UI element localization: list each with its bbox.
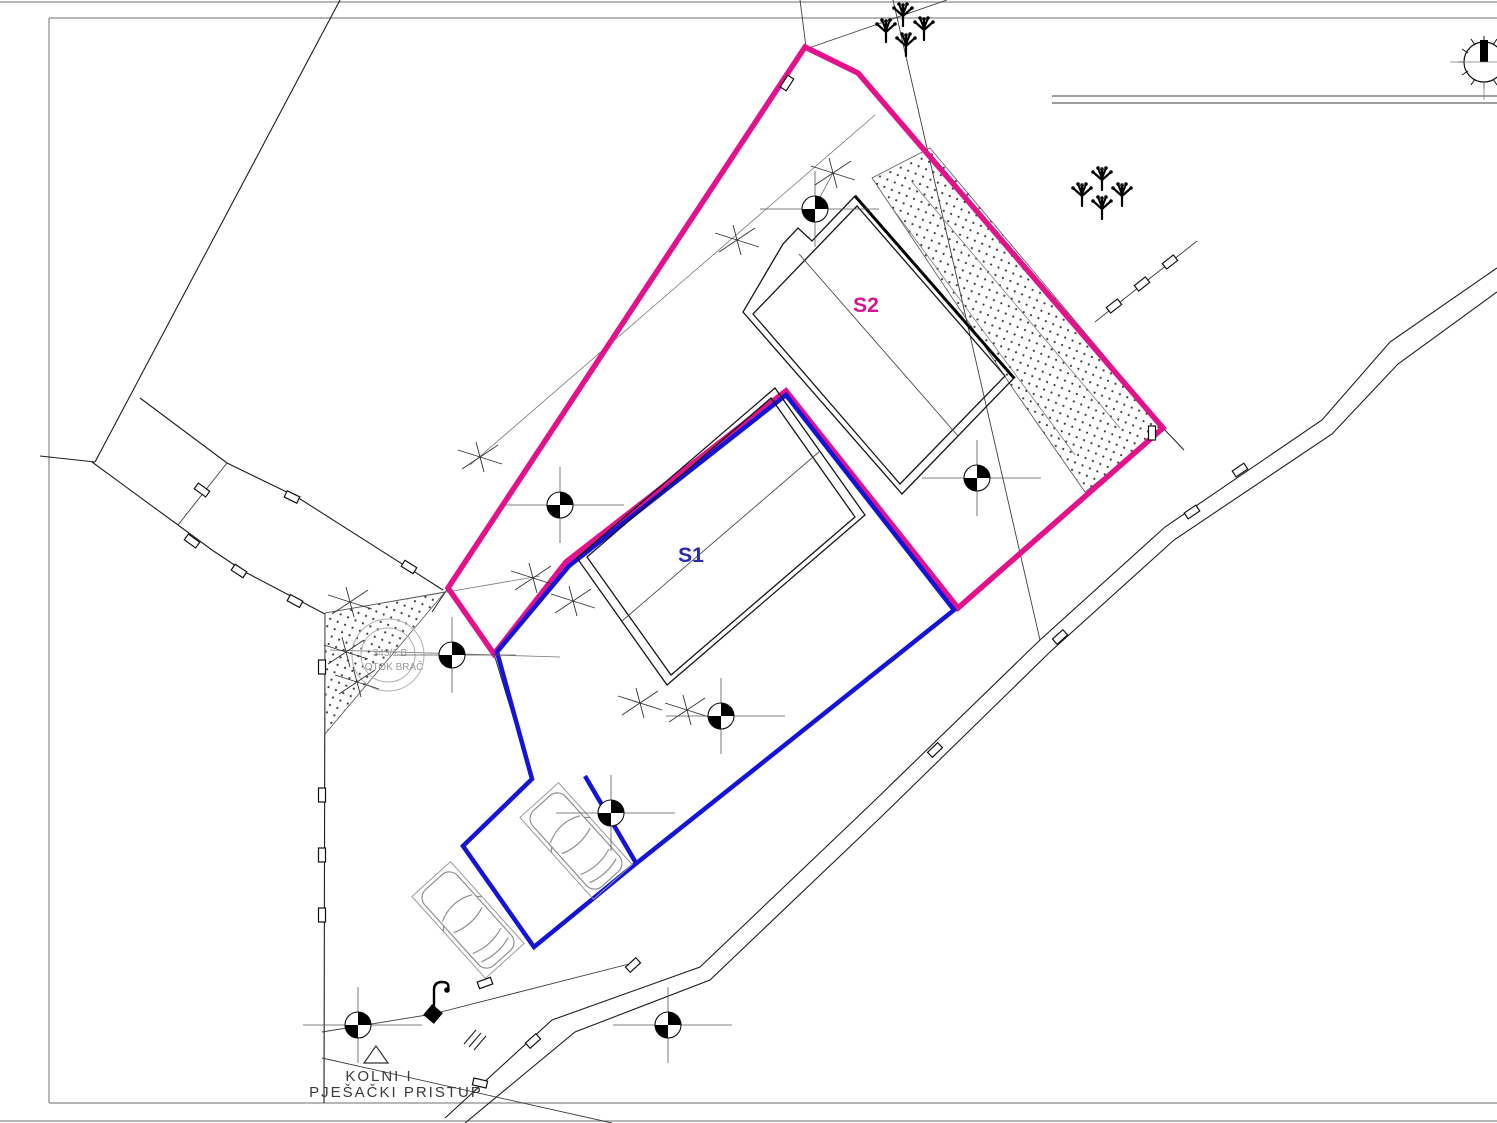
parcel-note-line1: 343/1 B xyxy=(373,648,408,659)
building-s2-ridge-line xyxy=(799,254,958,436)
access-direction-triangle-icon xyxy=(364,1046,388,1063)
shrub-icon xyxy=(1071,182,1093,206)
shrub-icon xyxy=(913,16,935,40)
site-plan: 343/1 B OTOK BRAČ xyxy=(0,0,1497,1123)
north-compass-icon xyxy=(1450,36,1497,100)
parking-stall-outline xyxy=(412,862,524,979)
slope-tick-marks xyxy=(464,1030,486,1050)
boundary-stone-markers xyxy=(184,75,1247,1088)
sheet-frame xyxy=(0,2,1497,1121)
shrub-icon xyxy=(1091,195,1113,219)
parcel-s1-boundary xyxy=(463,395,954,947)
survey-control-point xyxy=(556,775,675,851)
building-s1-ridge-line xyxy=(622,451,820,621)
shrub-icon xyxy=(875,18,897,42)
survey-control-point xyxy=(397,617,516,693)
shrub-icon xyxy=(1091,166,1113,190)
survey-control-point xyxy=(666,678,785,754)
survey-control-point xyxy=(303,987,422,1063)
survey-control-point xyxy=(613,987,732,1063)
parcel-s1-label: S1 xyxy=(678,544,704,567)
access-label-line1: KOLNI I xyxy=(345,1068,412,1085)
access-label-line2: PJEŠAČKI PRISTUP xyxy=(309,1084,483,1101)
street-lamp-icon xyxy=(423,982,450,1024)
shrub-icon xyxy=(895,32,917,56)
road-lines xyxy=(322,268,1497,1123)
access-annotation: KOLNI I PJEŠAČKI PRISTUP xyxy=(309,1046,483,1101)
parcel-s2-label: S2 xyxy=(853,294,879,317)
survey-control-point xyxy=(922,440,1041,516)
shrub-icon xyxy=(1111,182,1133,206)
